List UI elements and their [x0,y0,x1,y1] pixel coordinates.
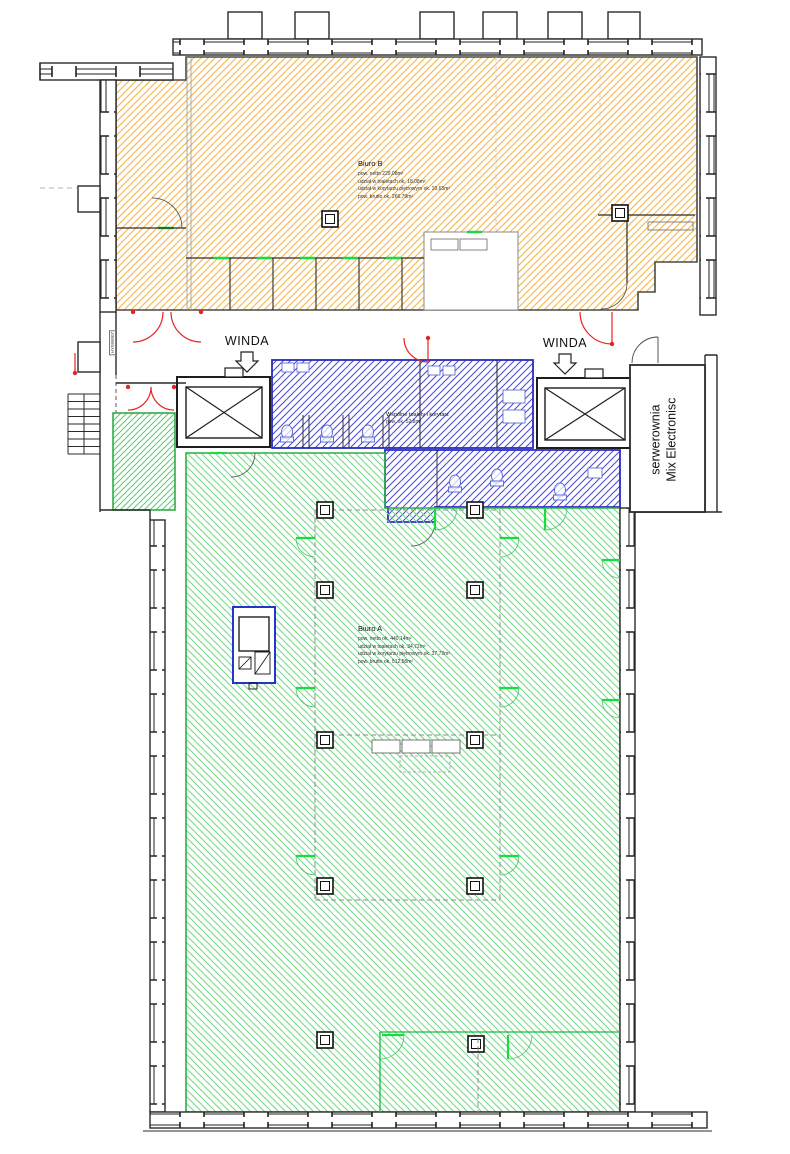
bottom-window-band [150,1112,707,1128]
server-room-line1: serwerownia [648,365,664,515]
elevator-shaft-1 [177,368,270,447]
server-room-door-arc [632,337,658,363]
right-upper-window-band [700,57,716,315]
zone-biuro-a [186,453,620,1112]
winda-arrow-2 [554,354,576,374]
shared-zone-area: pow. ok. 52,8m² [386,419,449,427]
stairs [68,394,100,454]
winda-1-label: WINDA [215,334,279,348]
server-room-line2: Mix Electronisc [664,365,680,515]
biuro-b-toalety: udział w toaletach ok. 18,08m² [358,179,450,187]
biuro-b-korytarz: udział w korytarzu piętrowym ok. 19,63m² [358,186,450,194]
top-left-window-band [40,63,173,80]
wall-tag-label: HY099007 [109,330,116,355]
biuro-b-brutto: pow. brutto ok. 266,79m² [358,194,450,202]
biuro-a-toalety: udział w toaletach ok. 34,72m² [358,644,450,652]
right-lower-window-band [620,508,635,1112]
shared-zone-title: Wspólne toalety i korytarz [386,411,449,419]
left-lower-window-band [150,520,165,1112]
elevator-shaft-2 [537,369,632,448]
biuro-b-netto: pow. netto 229,08m² [358,171,450,179]
left-upper-window-band [100,80,116,312]
shared-zone-label: Wspólne toalety i korytarz pow. ok. 52,8… [386,411,449,427]
server-room-label: serwerownia Mix Electronisc [648,365,679,515]
top-window-band [173,39,702,55]
biuro-a-brutto: pow. brutto ok. 512,58m² [358,659,450,667]
top-window-boxes [228,12,640,39]
biuro-a-korytarz: udział w korytarzu piętrowym ok. 37,72m² [358,651,450,659]
zone-green-strip [113,413,175,510]
winda-2-label: WINDA [533,336,597,350]
biuro-b-title: Biuro B [358,158,450,169]
biuro-a-title: Biuro A [358,623,450,634]
biuro-b-label: Biuro B pow. netto 229,08m² udział w toa… [358,158,450,201]
biuro-a-label: Biuro A pow. netto ok. 440,14m² udział w… [358,623,450,666]
floor-plan: WINDA WINDA Biuro B pow. netto 229,08m² … [0,0,790,1154]
biuro-a-netto: pow. netto ok. 440,14m² [358,636,450,644]
furniture-unit [233,607,275,689]
